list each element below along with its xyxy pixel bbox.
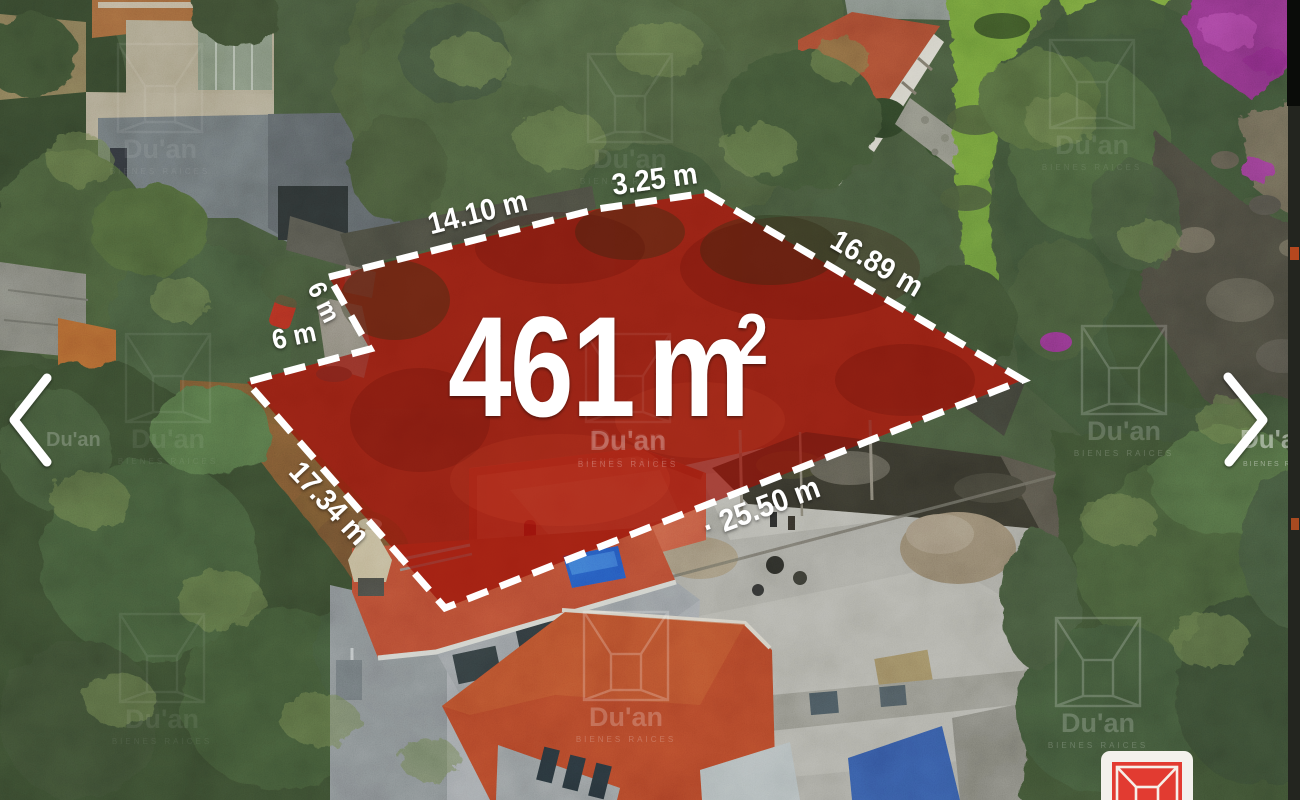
svg-text:2: 2 bbox=[736, 299, 768, 380]
svg-text:BIENES RAICES: BIENES RAICES bbox=[578, 460, 678, 469]
svg-text:Du'an: Du'an bbox=[46, 429, 101, 451]
svg-text:Du'an: Du'an bbox=[590, 425, 667, 456]
